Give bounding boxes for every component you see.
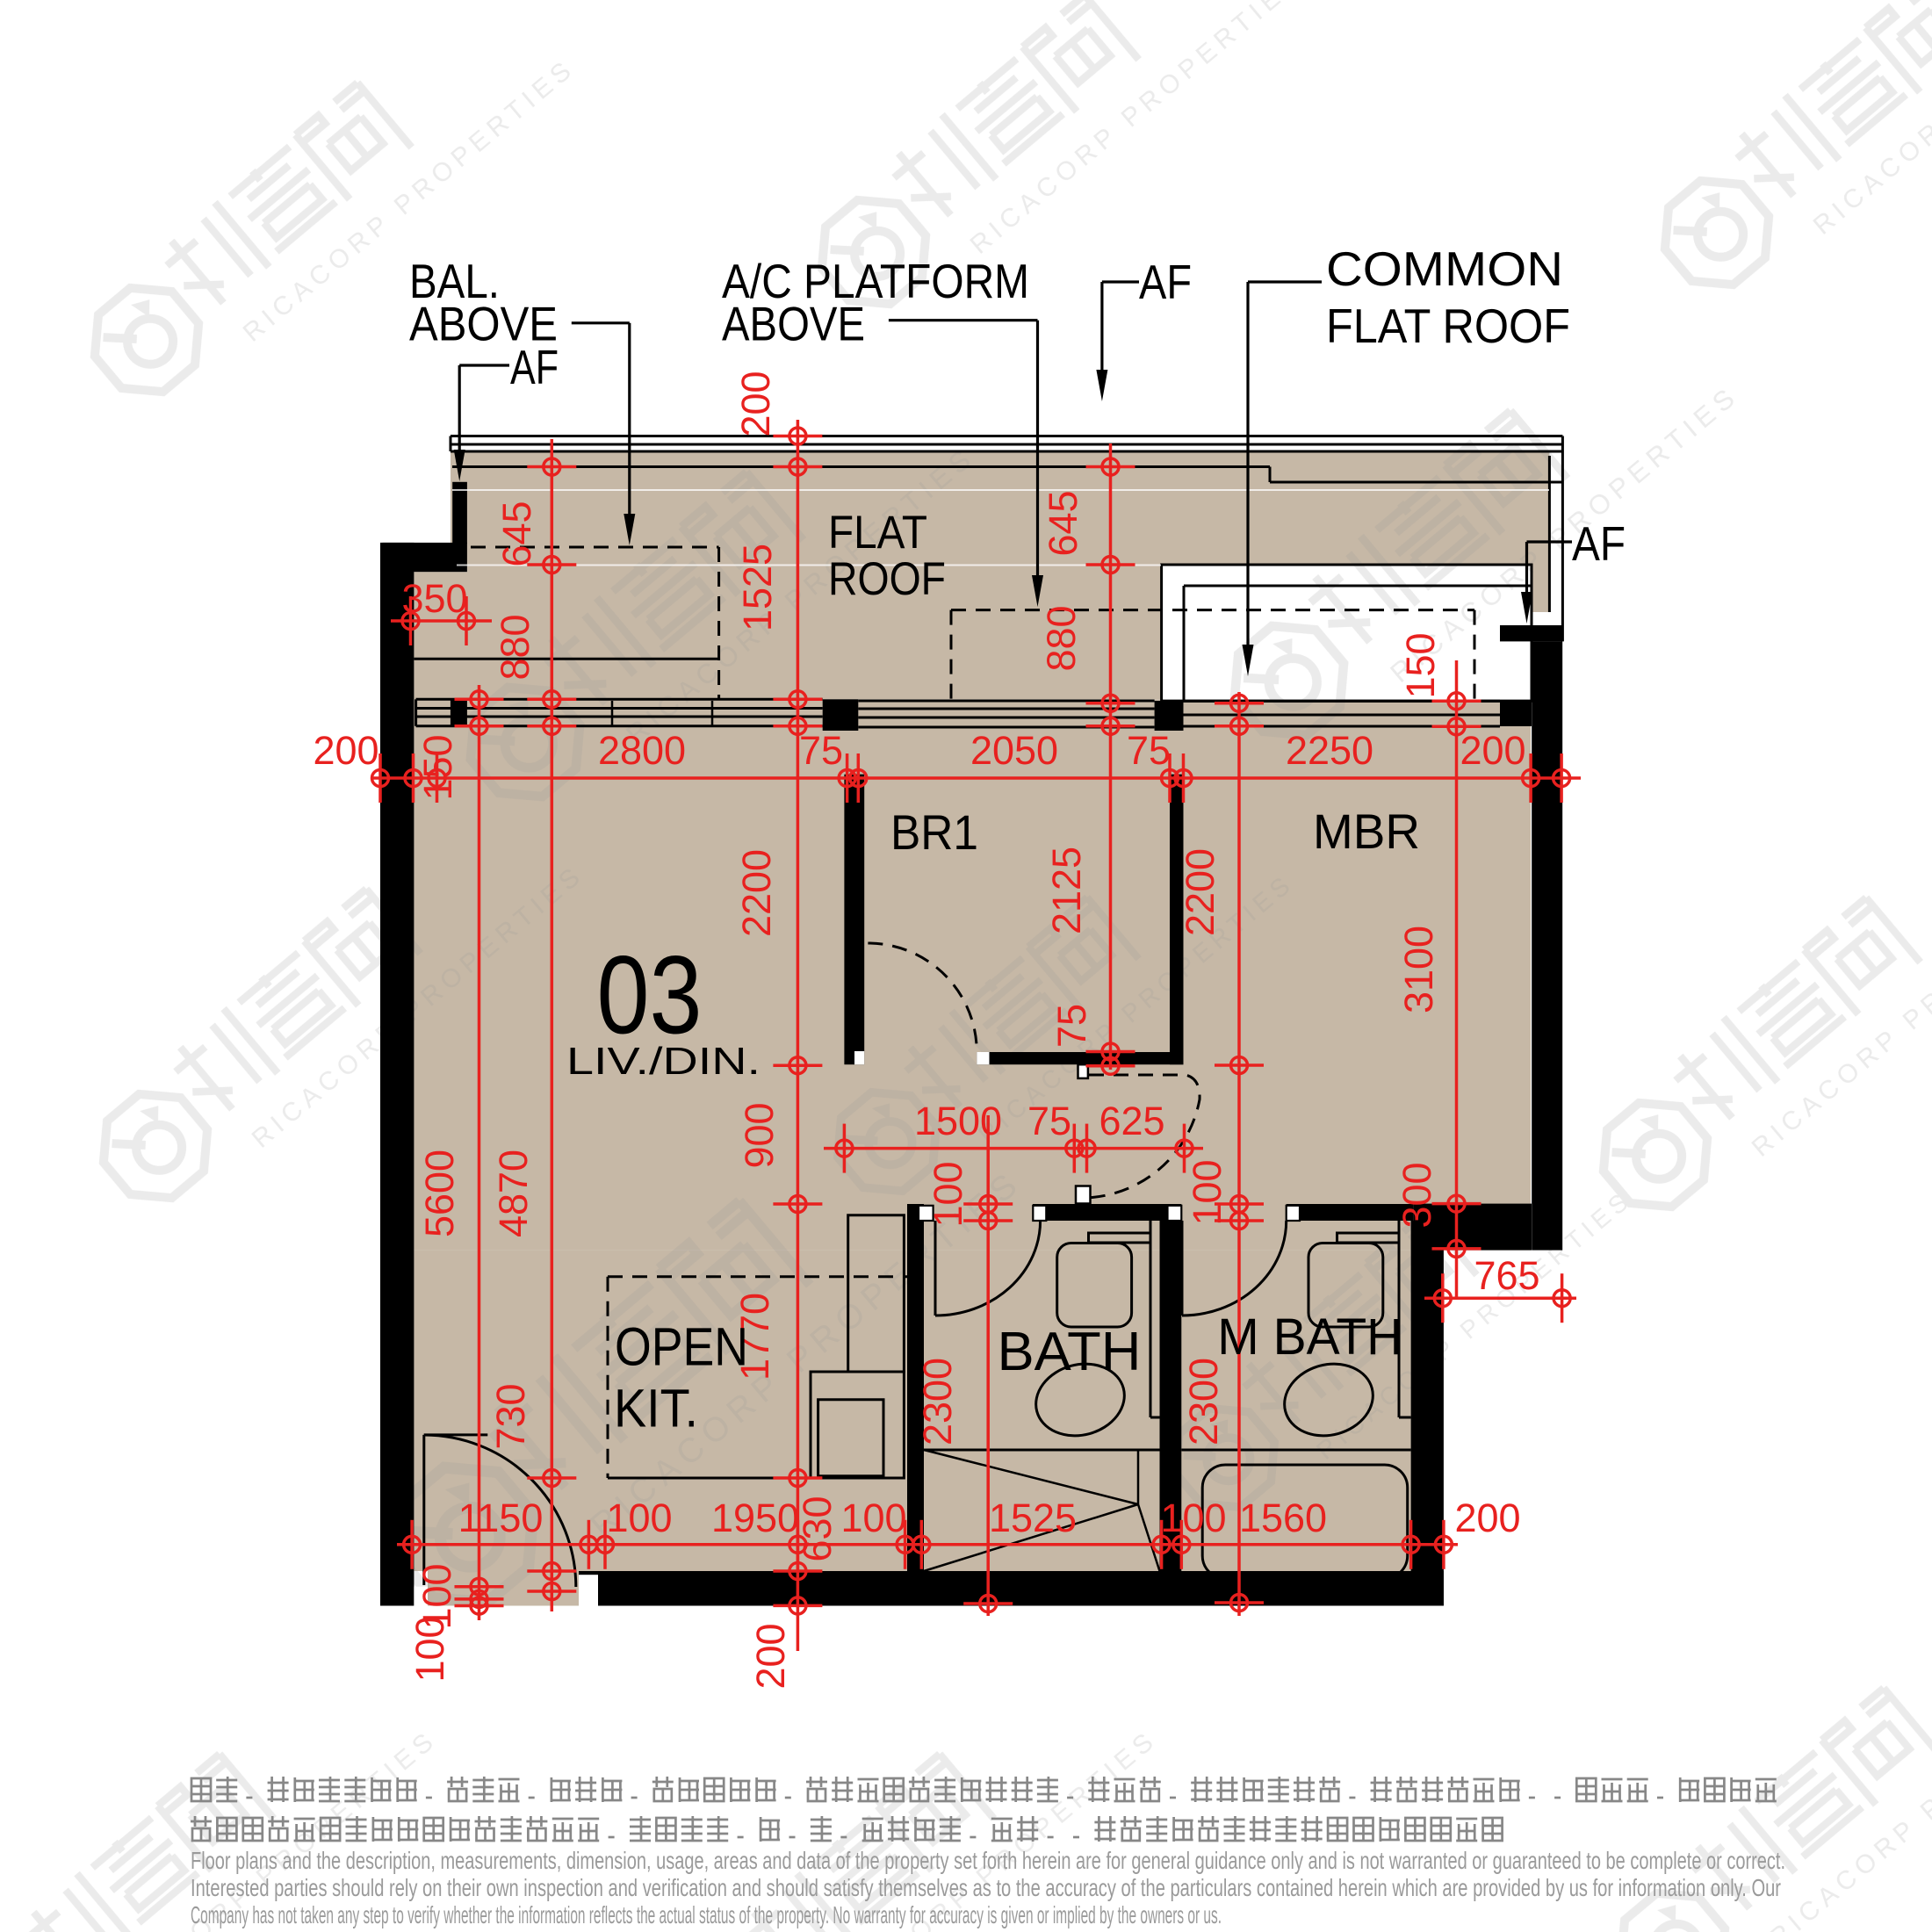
svg-text:LIV./DIN.: LIV./DIN. bbox=[566, 1040, 761, 1083]
svg-text:2200: 2200 bbox=[1178, 848, 1222, 936]
svg-text:1525: 1525 bbox=[735, 544, 780, 631]
svg-text:880: 880 bbox=[1039, 605, 1084, 671]
svg-text:KIT.: KIT. bbox=[614, 1379, 698, 1438]
svg-text:ROOF: ROOF bbox=[828, 553, 946, 605]
svg-text:1950: 1950 bbox=[711, 1496, 799, 1540]
svg-text:75: 75 bbox=[1127, 728, 1171, 773]
svg-text:630: 630 bbox=[795, 1496, 840, 1561]
svg-text:300: 300 bbox=[1395, 1162, 1439, 1228]
svg-text:350: 350 bbox=[401, 576, 467, 621]
svg-text:880: 880 bbox=[493, 614, 537, 680]
svg-text:200: 200 bbox=[313, 728, 378, 773]
svg-text:BATH: BATH bbox=[998, 1322, 1142, 1382]
svg-text:FLAT ROOF: FLAT ROOF bbox=[1326, 299, 1570, 353]
svg-text:75: 75 bbox=[799, 728, 843, 773]
svg-text:1500: 1500 bbox=[914, 1099, 1002, 1143]
svg-text:AF: AF bbox=[510, 340, 559, 394]
svg-text:03: 03 bbox=[597, 934, 703, 1057]
svg-text:200: 200 bbox=[748, 1623, 793, 1689]
svg-text:5600: 5600 bbox=[417, 1150, 462, 1237]
svg-text:Floor plans and the descriptio: Floor plans and the description, measure… bbox=[191, 1847, 1785, 1874]
svg-text:COMMON: COMMON bbox=[1326, 241, 1563, 296]
svg-text:3100: 3100 bbox=[1396, 926, 1441, 1013]
svg-text:2250: 2250 bbox=[1286, 728, 1373, 773]
svg-text:150: 150 bbox=[1398, 632, 1443, 698]
svg-text:Company has not taken any step: Company has not taken any step to verify… bbox=[191, 1901, 1222, 1928]
svg-text:765: 765 bbox=[1474, 1253, 1539, 1298]
svg-text:AF: AF bbox=[1139, 255, 1192, 309]
svg-text:2800: 2800 bbox=[598, 728, 686, 773]
svg-text:645: 645 bbox=[1041, 490, 1085, 556]
svg-text:1525: 1525 bbox=[989, 1496, 1077, 1540]
svg-text:2300: 2300 bbox=[915, 1358, 960, 1445]
svg-text:100: 100 bbox=[407, 1616, 452, 1682]
svg-text:MBR: MBR bbox=[1313, 804, 1420, 859]
svg-text:M BATH: M BATH bbox=[1217, 1308, 1402, 1366]
svg-text:625: 625 bbox=[1099, 1099, 1164, 1143]
svg-text:4870: 4870 bbox=[491, 1150, 536, 1237]
svg-text:OPEN: OPEN bbox=[615, 1317, 748, 1377]
svg-text:1150: 1150 bbox=[458, 1496, 544, 1540]
svg-text:2125: 2125 bbox=[1044, 847, 1089, 934]
svg-text:Interested parties should rely: Interested parties should rely on their … bbox=[191, 1874, 1781, 1901]
svg-text:75: 75 bbox=[1027, 1099, 1071, 1143]
svg-text:100: 100 bbox=[1160, 1496, 1226, 1540]
svg-text:200: 200 bbox=[1460, 728, 1525, 773]
svg-text:200: 200 bbox=[733, 371, 778, 436]
svg-text:730: 730 bbox=[488, 1383, 533, 1449]
svg-text:100: 100 bbox=[1185, 1159, 1229, 1225]
svg-text:100: 100 bbox=[840, 1496, 906, 1540]
svg-text:FLAT: FLAT bbox=[828, 507, 927, 559]
svg-text:200: 200 bbox=[1454, 1496, 1520, 1540]
svg-text:2050: 2050 bbox=[970, 728, 1058, 773]
svg-text:645: 645 bbox=[494, 501, 539, 566]
svg-text:75: 75 bbox=[1049, 1004, 1094, 1048]
svg-text:AF: AF bbox=[1572, 516, 1626, 571]
svg-text:BR1: BR1 bbox=[890, 804, 978, 860]
svg-text:1560: 1560 bbox=[1239, 1496, 1327, 1540]
svg-text:100: 100 bbox=[926, 1161, 970, 1227]
svg-text:900: 900 bbox=[737, 1102, 782, 1168]
svg-text:ABOVE: ABOVE bbox=[722, 297, 865, 351]
svg-text:2200: 2200 bbox=[734, 849, 779, 937]
svg-text:150: 150 bbox=[415, 734, 460, 800]
svg-text:2300: 2300 bbox=[1181, 1358, 1226, 1445]
svg-text:100: 100 bbox=[606, 1496, 672, 1540]
